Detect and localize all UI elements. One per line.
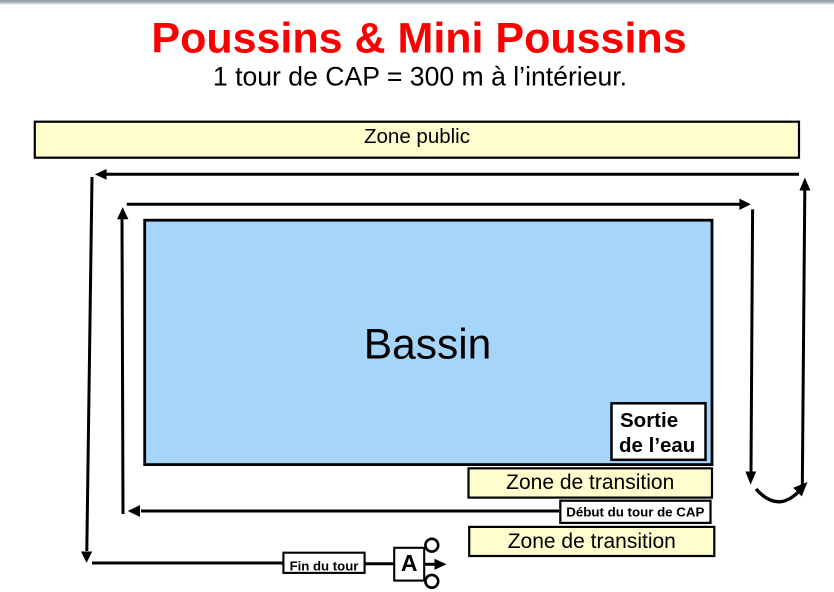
svg-text:Zone de transition: Zone de transition <box>506 471 674 494</box>
svg-text:Zone de transition: Zone de transition <box>508 530 676 553</box>
svg-text:A: A <box>401 550 418 576</box>
svg-text:Poussins & Mini Poussins: Poussins & Mini Poussins <box>151 15 686 63</box>
svg-text:Sortie: Sortie <box>620 409 678 432</box>
svg-text:Début du tour de CAP: Début du tour de CAP <box>566 505 704 520</box>
svg-text:de l’eau: de l’eau <box>619 434 695 457</box>
svg-text:Fin du tour: Fin du tour <box>290 558 359 573</box>
svg-text:Bassin: Bassin <box>364 322 492 369</box>
svg-text:Zone public: Zone public <box>364 125 470 148</box>
svg-text:1 tour de CAP = 300 m à l’inté: 1 tour de CAP = 300 m à l’intérieur. <box>213 62 627 92</box>
